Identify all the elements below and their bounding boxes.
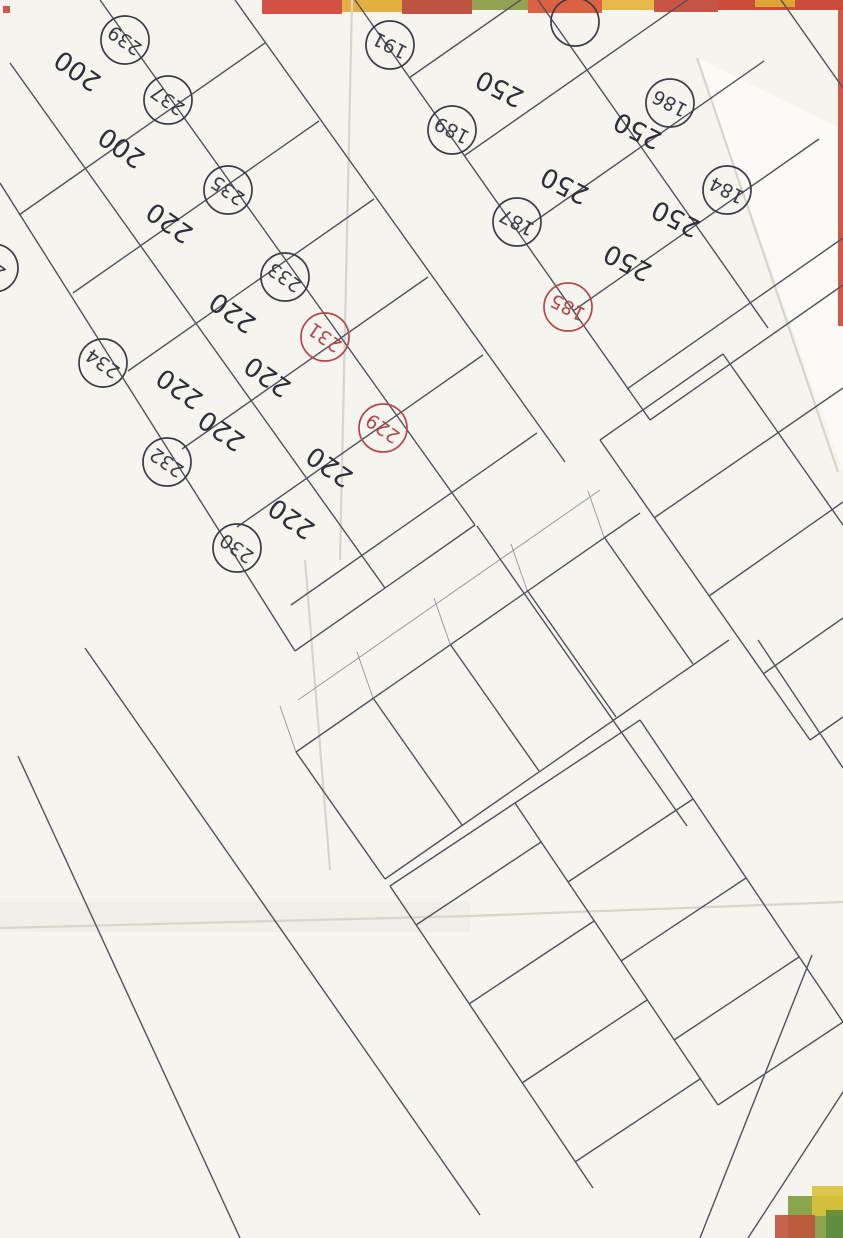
scan-edge-artifact	[755, 0, 795, 7]
scan-edge-artifact	[826, 1210, 843, 1238]
scan-edge-artifact	[775, 1215, 815, 1238]
map-canvas: 2002392002372202352202332202312202292202…	[0, 0, 843, 1238]
scanned-cadastral-map: 2002392002372202352202332202312202292202…	[0, 0, 843, 1238]
scan-edge-artifact	[3, 6, 10, 13]
scan-edge-artifact	[402, 0, 472, 14]
scan-edge-artifact	[602, 0, 654, 10]
scan-edge-artifact	[654, 0, 718, 12]
scan-edge-artifact	[838, 6, 843, 326]
scan-edge-artifact	[262, 0, 342, 14]
